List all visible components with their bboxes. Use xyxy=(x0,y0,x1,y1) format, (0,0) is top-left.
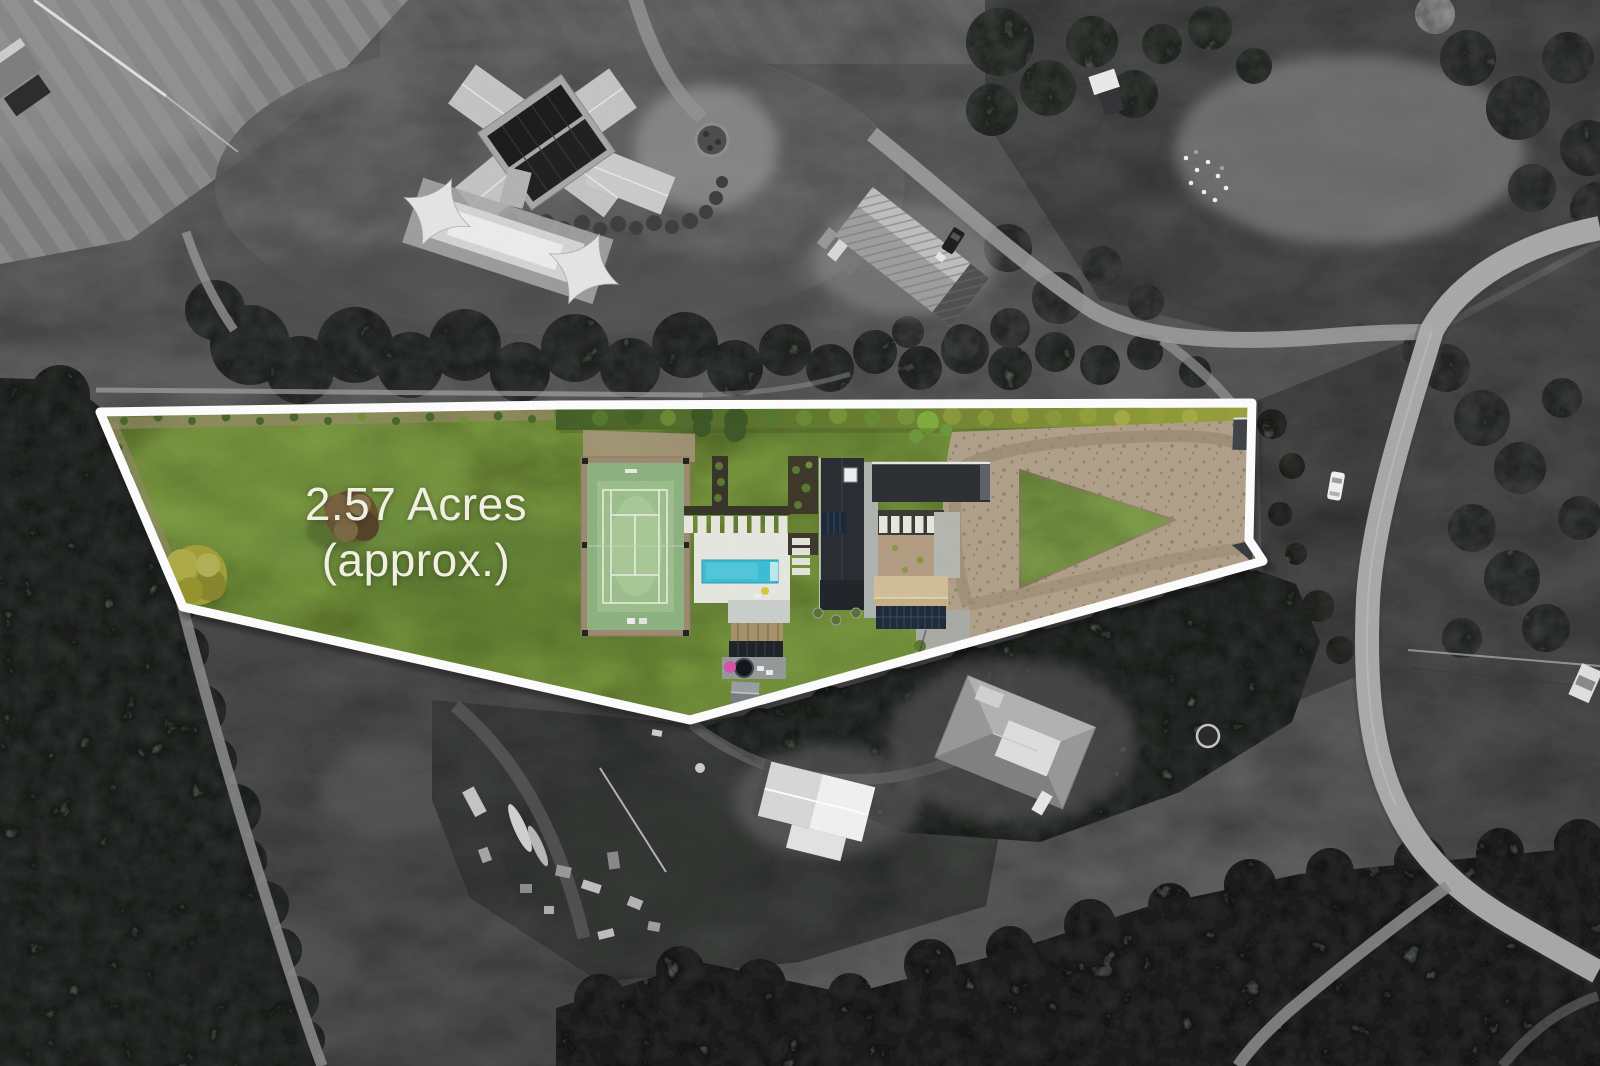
aerial-photo: 2.57 Acres (approx.) xyxy=(0,0,1600,1066)
aerial-photo-canvas: 2.57 Acres (approx.) xyxy=(0,0,1600,1066)
film-grain xyxy=(0,0,1600,1066)
